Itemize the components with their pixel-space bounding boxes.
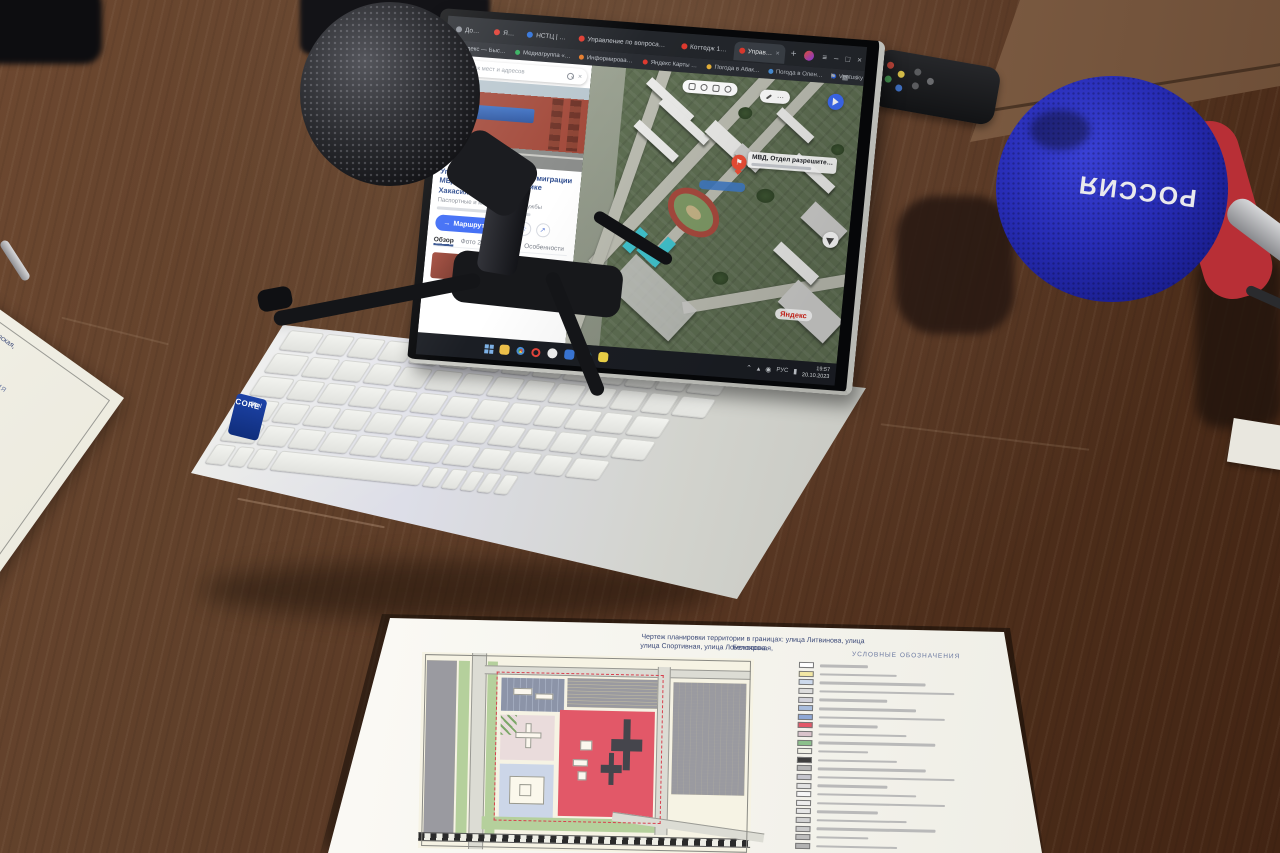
legend-label (819, 725, 878, 729)
panels-icon[interactable]: ▦ (842, 73, 849, 81)
planning-document-front: Чертеж планировки территории в границах:… (328, 610, 1042, 853)
legend-label (818, 759, 897, 763)
tb-spacer (423, 344, 479, 348)
tab-favicon (527, 32, 534, 38)
legend-swatch (796, 782, 811, 788)
browser-tab[interactable]: Яндекс (488, 22, 521, 43)
legend-label (818, 733, 906, 737)
new-tab-button[interactable]: + (786, 49, 801, 60)
legend-swatch (799, 671, 814, 677)
notes-icon[interactable] (598, 352, 609, 363)
legend-label (818, 742, 935, 747)
legend-label (818, 767, 926, 772)
legend-label (820, 673, 897, 677)
tlabel: Управление по вопросам миграции МВД Росс… (587, 36, 669, 49)
remote-button-yellow (897, 70, 905, 78)
tab-favicon (739, 47, 746, 53)
legend-label (817, 819, 907, 823)
chair-silhouette (896, 196, 1014, 334)
decor: Погода в Абак… (714, 64, 760, 73)
decor (489, 349, 493, 353)
start-button[interactable] (484, 344, 494, 354)
legend-swatch (795, 843, 810, 849)
menu-icon[interactable]: ≡ (822, 52, 828, 61)
maximize-button[interactable]: □ (845, 54, 851, 63)
decor: Медиагруппа «Ю… (523, 50, 571, 60)
legend-swatch (797, 731, 812, 737)
remote-button-green (884, 75, 892, 83)
app-white-icon[interactable] (547, 348, 558, 359)
paper-scrap (1227, 418, 1280, 470)
legend-swatch (798, 688, 813, 694)
place-tab[interactable]: Фото 2 (460, 238, 481, 246)
tab-close-icon[interactable]: × (775, 50, 780, 57)
clear-search-icon[interactable]: × (578, 73, 583, 80)
bookmark-item[interactable]: Погода в Абак… (706, 64, 760, 74)
legend-swatch (797, 739, 812, 745)
decor (485, 344, 489, 348)
chrome-icon[interactable] (516, 347, 525, 356)
rbg2 (911, 82, 919, 90)
bookmark-item[interactable]: Яндекс Карты —… (642, 59, 698, 69)
legend-swatch (799, 662, 814, 668)
dark-object (0, 0, 102, 64)
legend-label (818, 776, 955, 781)
measure-toolbar[interactable]: ⋯ (759, 89, 790, 104)
map-frame (421, 654, 750, 853)
remote-button-red (887, 61, 895, 69)
legend-swatch (796, 808, 811, 814)
bmright: ⚑ ▦ ↓ (829, 72, 858, 82)
legend-label (816, 845, 897, 849)
bookmark-item[interactable]: Погода в Олен… (768, 68, 823, 78)
legend-label (819, 716, 945, 721)
maps-viewport: Поиск мест и адресов × Управление по воп… (418, 54, 864, 363)
legend-label (819, 690, 954, 695)
bookmark-favicon (579, 54, 584, 59)
satellite-map[interactable]: ⋯ ⚑ МВД, Отдел разрешите… Яндекс (565, 65, 863, 363)
legend-swatch (795, 834, 810, 840)
tray-expand-icon[interactable]: ⌃ (746, 364, 753, 372)
minimize-button[interactable]: – (834, 53, 839, 62)
tray-icon[interactable]: ◉ (765, 365, 772, 373)
decor: 20.10.2023 (802, 372, 830, 381)
tab-favicon (578, 35, 585, 41)
legend-swatch (796, 791, 811, 797)
wifi-icon[interactable]: ▮ (793, 367, 798, 375)
bookmark-favicon (706, 64, 711, 69)
browser-tab[interactable]: Коттедж 180 м² из руч… (675, 36, 733, 59)
legend-swatch (798, 705, 813, 711)
browser-tab[interactable]: Управление по вопр…× (733, 41, 785, 64)
close-button[interactable]: × (857, 55, 863, 64)
route-icon: → (443, 219, 451, 226)
remote-button-blue (895, 84, 903, 92)
language-indicator[interactable]: РУС (776, 367, 789, 374)
place-tab[interactable]: Обзор (433, 236, 454, 244)
plan-map-slot (418, 652, 754, 853)
decor: Яндекс Карты —… (650, 59, 698, 69)
legend-label (817, 785, 887, 789)
tab-favicon (681, 43, 688, 49)
legend-swatch (796, 817, 811, 823)
document-title: Чертеж планировки территории в границах:… (415, 628, 865, 647)
legend-label (817, 810, 878, 814)
legend-label (816, 828, 935, 833)
tlabel: НСТЦ | Геоинформ… (536, 32, 567, 41)
legend-label (820, 664, 868, 668)
opera-icon[interactable] (531, 347, 541, 357)
word-icon[interactable] (564, 349, 575, 360)
decor: CORE (234, 398, 261, 413)
panorama-icon (700, 84, 708, 91)
bookmark-favicon (642, 59, 647, 64)
layers-icon (688, 83, 696, 90)
folder-icon[interactable] (499, 344, 510, 355)
scene: Чертеж планировки территории в границах:… (0, 0, 1280, 853)
legend-label (819, 699, 887, 703)
pf-inner: Чертеж планировки территории в границах:… (323, 610, 1042, 853)
wincol (548, 99, 563, 150)
decor: Погода в Олен… (776, 69, 823, 79)
wincol (566, 100, 581, 151)
rbg3 (926, 77, 934, 85)
rbg1 (914, 68, 922, 76)
legend-swatch (797, 765, 812, 771)
decor: Маршрут (453, 220, 485, 229)
bookmark-item[interactable]: Медиагруппа «Ю… (515, 49, 571, 59)
decor: Информирование… (587, 55, 635, 65)
legend-title: УСЛОВНЫЕ ОБОЗНАЧЕНИЯ (799, 650, 1013, 661)
bookmark-favicon (515, 50, 520, 55)
pencil-icon (766, 94, 772, 99)
planning-map (418, 652, 754, 853)
place-tab[interactable]: Особенности (524, 243, 564, 253)
legend-label (817, 802, 945, 807)
legend-label (816, 836, 868, 840)
legend-swatch (797, 774, 812, 780)
legend-label (818, 750, 868, 754)
legend-rows (795, 661, 1013, 853)
more-icon: ⋯ (777, 93, 785, 101)
legend-swatch (798, 722, 813, 728)
legend-swatch (797, 757, 812, 763)
decor (490, 344, 494, 348)
legend-label (820, 682, 926, 687)
bookmark-item[interactable]: Информирование… (579, 54, 635, 64)
search-icon (567, 72, 575, 79)
tlabel: Яндекс (503, 29, 516, 37)
legend-swatch (799, 679, 814, 685)
micr-smudge (1030, 110, 1090, 150)
winctl: ≡ – □ × (822, 52, 862, 64)
tab-favicon (494, 29, 501, 35)
taskbar-clock[interactable]: 19:57 20.10.2023 (802, 366, 831, 381)
legend-label (819, 707, 916, 712)
search-area-icon (724, 85, 732, 92)
tlabel: Коттедж 180 м² из руч… (690, 43, 728, 53)
legend: УСЛОВНЫЕ ОБОЗНАЧЕНИЯ (795, 650, 1013, 853)
decor: улица Спортивная, улица Ломоносова. (640, 642, 767, 654)
tray: ⌃ ▴ ◉ РУС ▮ 19:57 20.10.2023 (745, 361, 830, 380)
tlabel: Дом — Тан… (465, 26, 483, 34)
browser-tab[interactable]: НСТЦ | Геоинформ… (521, 25, 572, 48)
tray-icon[interactable]: ▴ (756, 365, 760, 373)
legend-swatch (795, 825, 810, 831)
bookmark-favicon (768, 69, 773, 74)
legend-swatch (796, 800, 811, 806)
profile-avatar[interactable] (804, 50, 815, 61)
tlabel: Управление по вопр… (748, 48, 773, 57)
legend-swatch (798, 714, 813, 720)
camera-icon (712, 85, 720, 92)
legend-swatch (797, 748, 812, 754)
legend-label (817, 793, 916, 798)
legend-swatch (798, 697, 813, 703)
decor (484, 349, 488, 353)
mic-mesh (302, 4, 478, 184)
bookmark-flag-icon[interactable]: ⚑ (829, 72, 836, 80)
share-button[interactable]: ↗ (535, 223, 550, 238)
